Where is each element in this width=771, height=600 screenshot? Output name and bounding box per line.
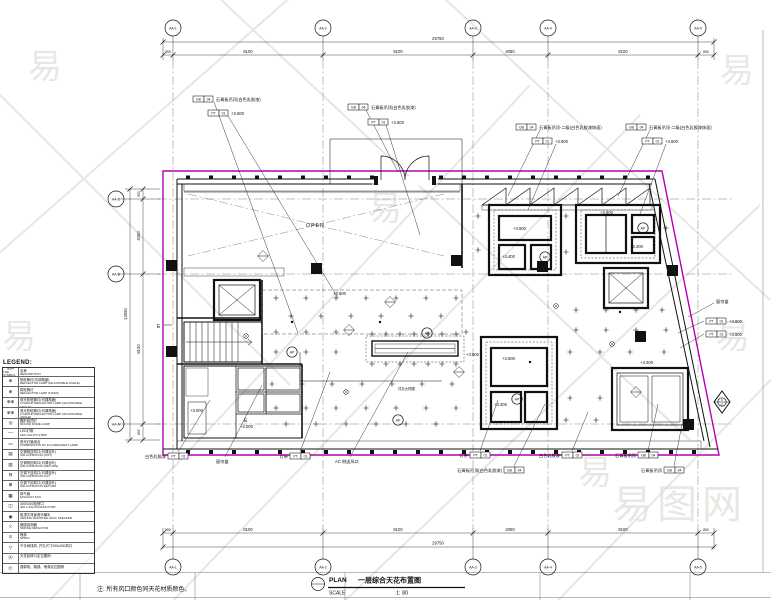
svg-text:01: 01 bbox=[182, 455, 186, 459]
plan-label: PLAN bbox=[329, 577, 347, 584]
svg-text:+3.400: +3.400 bbox=[640, 360, 654, 365]
wall-hatch-mid bbox=[184, 268, 284, 276]
svg-text:PT: PT bbox=[535, 140, 539, 144]
svg-text:AA-3: AA-3 bbox=[469, 27, 477, 31]
callout-curtain-bottom: 窗帘盒 bbox=[216, 458, 229, 465]
legend-row: ⊕防眩筒灯REFLECTOR LAMP (FIXED) bbox=[3, 387, 94, 397]
drawing-sheet: 易 易 易 易 易 易 易图网 bbox=[0, 0, 771, 600]
svg-text:8100: 8100 bbox=[618, 49, 628, 54]
open-label: OPEN bbox=[306, 223, 325, 229]
svg-text:01: 01 bbox=[720, 333, 724, 337]
svg-text:AA-3: AA-3 bbox=[469, 566, 477, 570]
svg-text:01: 01 bbox=[546, 140, 550, 144]
legend-row: ⊕⊕双头防眩筒灯(可调角度)2 GROUP REFLECTOR LAMP (AD… bbox=[3, 408, 94, 418]
legend-symbol-icon: ⊕⊕ bbox=[3, 408, 19, 417]
svg-text:易: 易 bbox=[2, 318, 36, 356]
detail-ref-label: 详见大样图 bbox=[398, 386, 416, 391]
svg-text:04: 04 bbox=[640, 126, 644, 130]
svg-text:AA-2: AA-2 bbox=[319, 27, 327, 31]
svg-text:石膏板吊顶(白色乳胶漆): 石膏板吊顶(白色乳胶漆) bbox=[457, 467, 502, 474]
svg-text:29750: 29750 bbox=[432, 541, 444, 546]
scale-value: 1: 80 bbox=[396, 591, 408, 597]
walls bbox=[163, 139, 718, 454]
svg-text:石膏板吊顶-二级(白色乳胶漆饰面): 石膏板吊顶-二级(白色乳胶漆饰面) bbox=[649, 124, 712, 131]
svg-text:GB: GB bbox=[507, 469, 513, 473]
svg-text:AA-A: AA-A bbox=[112, 423, 121, 427]
svg-text:白色乳胶漆: 白色乳胶漆 bbox=[539, 452, 560, 459]
svg-text:D: D bbox=[721, 398, 723, 402]
svg-text:石膏板吊顶: 石膏板吊顶 bbox=[641, 467, 663, 474]
svg-text:+3.600: +3.600 bbox=[729, 319, 743, 324]
svg-text:4050: 4050 bbox=[136, 231, 141, 241]
callout-leader-lines bbox=[178, 102, 714, 466]
legend-symbol-icon: ▤ bbox=[3, 450, 19, 459]
watermark: 易 易 易 易 易 易 易图网 bbox=[0, 0, 771, 600]
svg-text:8100: 8100 bbox=[136, 344, 141, 354]
legend-symbol-icon: ▽ bbox=[3, 543, 19, 552]
svg-text:灯带: 灯带 bbox=[460, 452, 468, 459]
legend-row: ◉吸顶式背景音乐喇叭CEILING MOUNTED HVAC SPEAKER bbox=[3, 512, 94, 522]
svg-text:AP: AP bbox=[515, 398, 520, 402]
legend-row: ⊕防眩筒灯(可调角度)REFLECTOR LAMP (ADJUSTABLE AN… bbox=[3, 377, 94, 387]
svg-text:+3.600: +3.600 bbox=[391, 120, 405, 125]
svg-text:GB: GB bbox=[667, 469, 673, 473]
svg-text:PT: PT bbox=[709, 333, 713, 337]
svg-text:29750: 29750 bbox=[432, 36, 444, 41]
legend-symbol-icon: ⊕⊕ bbox=[3, 398, 19, 407]
dimension-top: 29750 550 8100 8100 4050 8100 850 bbox=[161, 36, 717, 60]
legend-row: ▥空调侧回风口(可调百叶)AIR-CONDITION (RETURN) bbox=[3, 460, 94, 470]
legend-row: ┄┄LED灯带LED LIGHTS STRIP bbox=[3, 429, 94, 439]
legend-symbol-icon: ▭ bbox=[3, 439, 19, 448]
svg-text:石膏板吊顶-二级(白色乳胶漆饰面): 石膏板吊顶-二级(白色乳胶漆饰面) bbox=[539, 124, 602, 131]
legend-row: Ⓕ强弱电、烟感、喷淋定位图例 bbox=[3, 564, 94, 573]
legend-symbol-icon: ⊙ bbox=[3, 533, 19, 542]
svg-text:+3.400: +3.400 bbox=[494, 402, 508, 407]
svg-text:AP: AP bbox=[396, 419, 401, 423]
svg-text:8100: 8100 bbox=[243, 527, 253, 532]
legend-table: 图例THE SYMBOL 名称DESCRIPTION ⊕防眩筒灯(可调角度)RE… bbox=[2, 367, 95, 574]
callout-curtain-right: 窗帘盒 bbox=[716, 298, 729, 305]
svg-text:易: 易 bbox=[720, 52, 754, 90]
svg-text:GB: GB bbox=[641, 454, 647, 458]
svg-text:AP: AP bbox=[290, 351, 295, 355]
svg-text:04: 04 bbox=[518, 469, 522, 473]
plan-boundary bbox=[163, 171, 719, 455]
svg-text:04: 04 bbox=[530, 126, 534, 130]
legend-panel: LEGEND: 图例THE SYMBOL 名称DESCRIPTION ⊕防眩筒灯… bbox=[2, 360, 95, 574]
svg-text:石膏板吊顶(白色乳胶漆): 石膏板吊顶(白色乳胶漆) bbox=[371, 104, 416, 111]
legend-symbol-icon: ▦ bbox=[3, 491, 19, 500]
legend-symbol-icon: Ⓕ bbox=[3, 564, 19, 573]
svg-text:+3.600: +3.600 bbox=[231, 111, 245, 116]
svg-text:8100: 8100 bbox=[393, 49, 403, 54]
legend-row: ☉烟感探测器SMOKE DETECTOR bbox=[3, 522, 94, 532]
dimension-left: 550 4050 8100 850 13550 bbox=[118, 187, 160, 443]
legend-symbol-icon: ◫ bbox=[3, 502, 19, 511]
legend-symbol-icon: ⊕ bbox=[3, 377, 19, 386]
room-top-right-a bbox=[489, 205, 561, 275]
svg-text:AA-5: AA-5 bbox=[694, 566, 702, 570]
svg-text:+3.600: +3.600 bbox=[466, 352, 480, 357]
svg-text:13550: 13550 bbox=[123, 308, 128, 320]
svg-text:850: 850 bbox=[703, 528, 709, 532]
staircase bbox=[184, 322, 262, 362]
svg-text:PT: PT bbox=[473, 454, 477, 458]
svg-text:AA-4: AA-4 bbox=[544, 566, 552, 570]
svg-text:850: 850 bbox=[137, 429, 141, 435]
svg-text:石膏板吊顶(白色乳胶漆): 石膏板吊顶(白色乳胶漆) bbox=[216, 96, 261, 103]
legend-row: Ⓐ天花检修口定位图例 bbox=[3, 554, 94, 564]
callout-ac: AC 侧送风口 bbox=[335, 458, 359, 465]
svg-text:+3.000: +3.000 bbox=[240, 424, 254, 429]
svg-text:AA-4: AA-4 bbox=[544, 27, 552, 31]
scale-label: SCALE bbox=[329, 591, 346, 597]
svg-text:8100: 8100 bbox=[618, 527, 628, 532]
svg-text:+3.600: +3.600 bbox=[555, 139, 569, 144]
svg-text:GB: GB bbox=[519, 126, 525, 130]
svg-text:PT: PT bbox=[371, 121, 375, 125]
svg-text:+3.400: +3.400 bbox=[630, 244, 644, 249]
legend-row: ◎圆形吸顶灯ROUND DOME LAMP bbox=[3, 419, 94, 429]
legend-symbol-icon: ⊟ bbox=[3, 471, 19, 480]
svg-text:550: 550 bbox=[165, 50, 171, 54]
legend-header: LEGEND: bbox=[3, 360, 95, 366]
svg-text:+3.600: +3.600 bbox=[665, 139, 679, 144]
legend-row: ▤空调侧送风口(可调百叶)AIR-CONDITION (OUT) bbox=[3, 450, 94, 460]
svg-text:GB: GB bbox=[196, 98, 202, 102]
room-top-right-b bbox=[576, 205, 660, 263]
svg-text:AA-C: AA-C bbox=[112, 198, 121, 202]
wall-hatch-bottom bbox=[177, 441, 701, 449]
legend-row: ▦排气扇EXHAUST FAN bbox=[3, 491, 94, 501]
svg-text:AP: AP bbox=[543, 256, 548, 260]
legend-symbol-icon: ▥ bbox=[3, 460, 19, 469]
legend-row: ⊙喷淋SPRAY bbox=[3, 533, 94, 543]
svg-text:+3.600: +3.600 bbox=[729, 332, 743, 337]
watermark-glyph: 易 bbox=[28, 48, 62, 86]
svg-text:01: 01 bbox=[720, 320, 724, 324]
svg-text:PT: PT bbox=[171, 455, 175, 459]
svg-text:01: 01 bbox=[304, 455, 308, 459]
svg-text:+3.400: +3.400 bbox=[502, 254, 516, 259]
svg-text:PT: PT bbox=[293, 455, 297, 459]
legend-symbol-icon: ⊞ bbox=[3, 481, 19, 490]
legend-row: ◫400X400检修口400 X 400 ACCESS PORT bbox=[3, 502, 94, 512]
svg-text:AP: AP bbox=[425, 332, 430, 336]
svg-text:AP: AP bbox=[641, 227, 646, 231]
svg-text:04: 04 bbox=[362, 106, 366, 110]
svg-text:4050: 4050 bbox=[505, 49, 515, 54]
svg-text:+3.000: +3.000 bbox=[190, 408, 204, 413]
legend-row: ⊕⊕双头防眩筒灯(可调角度)2 GROUP REFLECTOR LAMP (AD… bbox=[3, 398, 94, 408]
title-block: PLAN 一层综合天花布置图 SCALE 1: 80 注: 所有风口颜色同天花材… bbox=[97, 576, 465, 597]
legend-symbol-icon: ┄┄ bbox=[3, 429, 19, 438]
svg-text:850: 850 bbox=[703, 50, 709, 54]
svg-text:易: 易 bbox=[368, 190, 402, 228]
legend-column-headers: 图例THE SYMBOL 名称DESCRIPTION bbox=[3, 368, 94, 377]
drawing-title: 一层综合天花布置图 bbox=[358, 576, 421, 585]
svg-text:04: 04 bbox=[652, 454, 656, 458]
svg-text:+3.600: +3.600 bbox=[513, 226, 527, 231]
svg-text:+3.600: +3.600 bbox=[600, 210, 614, 215]
svg-text:01: 01 bbox=[484, 454, 488, 458]
svg-text:AA-B: AA-B bbox=[112, 273, 121, 277]
svg-text:GB: GB bbox=[629, 126, 635, 130]
light-fixtures bbox=[269, 213, 668, 426]
svg-text:E: E bbox=[157, 324, 161, 330]
dimension-bottom: 29750 550 8100 8100 4050 8100 850 bbox=[161, 527, 717, 559]
svg-text:01: 01 bbox=[222, 112, 226, 116]
svg-text:AA-1: AA-1 bbox=[169, 566, 177, 570]
svg-text:AA-2: AA-2 bbox=[319, 566, 327, 570]
watermark-site: 易图网 bbox=[612, 483, 747, 527]
legend-symbol-icon: ◉ bbox=[3, 512, 19, 521]
elevation-marker: D 01 bbox=[714, 391, 730, 413]
svg-text:04: 04 bbox=[207, 98, 211, 102]
svg-text:+3.600: +3.600 bbox=[502, 356, 516, 361]
legend-row: ▽干手间排风, 开孔尺寸200x200风口 bbox=[3, 543, 94, 553]
svg-text:4050: 4050 bbox=[505, 527, 515, 532]
svg-text:GB: GB bbox=[351, 106, 357, 110]
svg-text:PT: PT bbox=[709, 320, 713, 324]
svg-text:易: 易 bbox=[578, 454, 612, 492]
svg-text:PT: PT bbox=[211, 112, 215, 116]
svg-text:550: 550 bbox=[137, 191, 141, 197]
legend-symbol-icon: ◎ bbox=[3, 419, 19, 428]
ceiling-zones bbox=[262, 290, 462, 381]
svg-text:PT: PT bbox=[645, 140, 649, 144]
svg-text:AA-5: AA-5 bbox=[694, 27, 702, 31]
ceiling-plan-svg: 易 易 易 易 易 易 易图网 bbox=[0, 0, 771, 600]
grid-bubbles-left: AA-C AA-B AA-A bbox=[108, 191, 124, 432]
open-void-area: OPEN bbox=[188, 194, 444, 256]
svg-text:PT: PT bbox=[565, 454, 569, 458]
svg-text:白色乳胶漆: 白色乳胶漆 bbox=[145, 453, 166, 460]
legend-row: ▭荧光灯管组合COMBINATION OF FLUORESCENT LAMP bbox=[3, 439, 94, 449]
svg-text:8100: 8100 bbox=[243, 49, 253, 54]
legend-symbol-icon: Ⓐ bbox=[3, 554, 19, 563]
sheet-note: 注: 所有风口颜色同天花材质颜色。 bbox=[97, 585, 190, 593]
legend-symbol-icon: ⊕ bbox=[3, 387, 19, 396]
legend-symbol-icon: ☉ bbox=[3, 522, 19, 531]
legend-row: ⊟空调下送风口(可调百叶)AIR-CONDITION OUT bbox=[3, 471, 94, 481]
svg-text:01: 01 bbox=[382, 121, 386, 125]
legend-row: ⊞空调下回风口(可调百叶)AIR-CONDITION RETURN bbox=[3, 481, 94, 491]
svg-text:8100: 8100 bbox=[393, 527, 403, 532]
svg-text:灯带: 灯带 bbox=[280, 453, 288, 460]
elevator-left bbox=[214, 280, 260, 320]
svg-text:01: 01 bbox=[656, 140, 660, 144]
svg-text:04: 04 bbox=[678, 469, 682, 473]
svg-text:01: 01 bbox=[576, 454, 580, 458]
svg-text:550: 550 bbox=[165, 528, 171, 532]
svg-text:AA-1: AA-1 bbox=[169, 27, 177, 31]
svg-text:石膏板吊顶: 石膏板吊顶 bbox=[615, 452, 637, 459]
